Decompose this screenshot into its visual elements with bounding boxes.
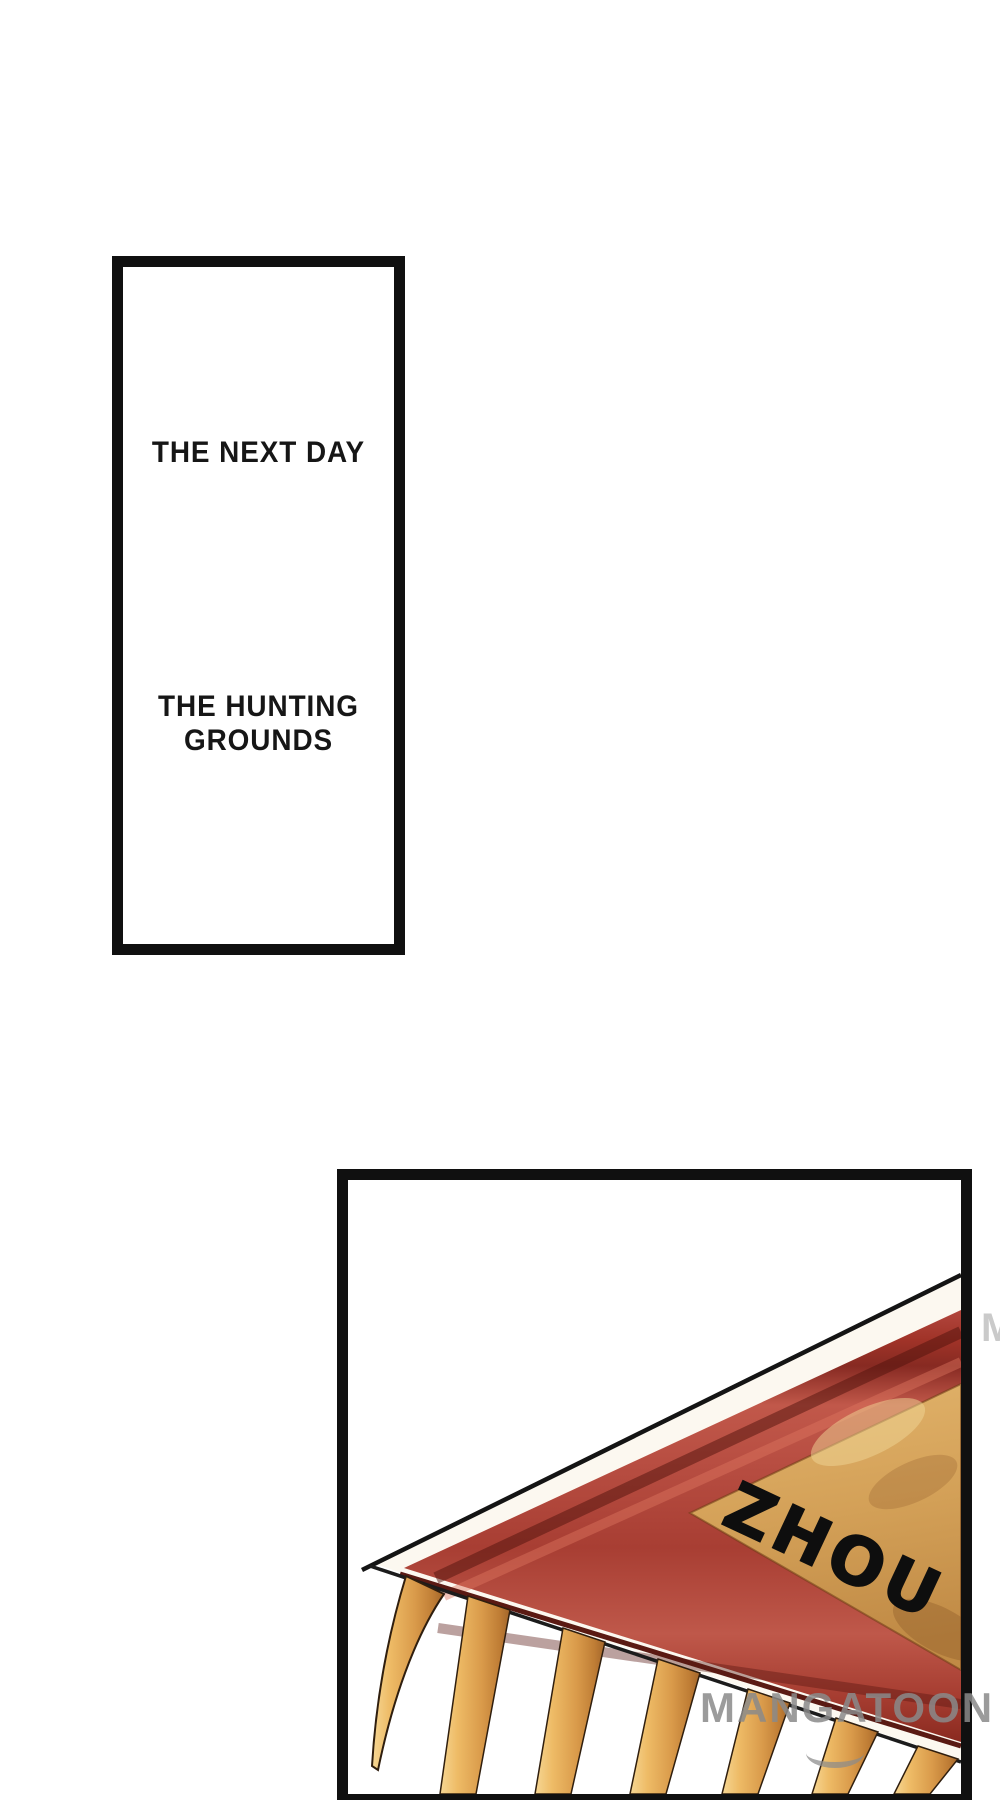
caption-panel: THE NEXT DAY THE HUNTING GROUNDS [112, 256, 405, 955]
watermark-fragment: M [981, 1306, 1000, 1350]
mangatoon-watermark: MANGATOON [700, 1690, 994, 1726]
caption-the-next-day: THE NEXT DAY [132, 436, 384, 470]
manga-page: THE NEXT DAY THE HUNTING GROUNDS [0, 0, 1000, 1800]
fringe-hook-streamer [372, 1576, 444, 1770]
caption-the-hunting-grounds: THE HUNTING GROUNDS [132, 690, 384, 758]
caption-line: GROUNDS [132, 724, 384, 758]
caption-line: THE HUNTING [132, 690, 384, 724]
watermark-swoosh-icon [806, 1738, 864, 1768]
fringe-streamer [535, 1628, 605, 1794]
fringe-streamer [630, 1659, 700, 1794]
